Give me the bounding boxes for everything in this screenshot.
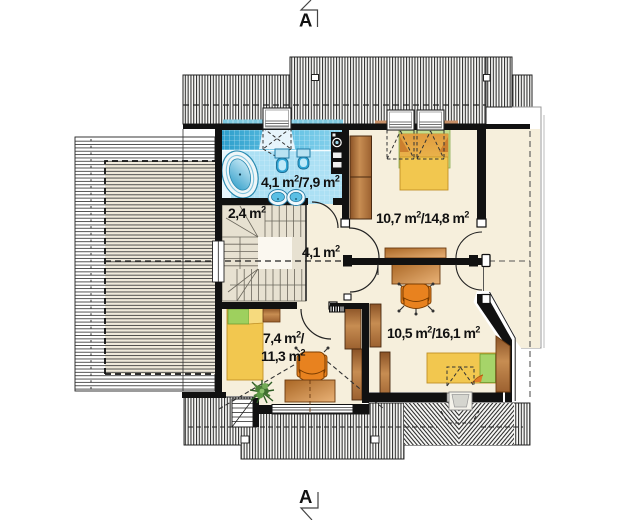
svg-text:4,1 m2/7,9 m2: 4,1 m2/7,9 m2 — [261, 174, 340, 191]
svg-text:11,3 m2: 11,3 m2 — [261, 348, 306, 365]
svg-text:A: A — [299, 10, 312, 31]
svg-text:10,7 m2/14,8 m2: 10,7 m2/14,8 m2 — [376, 210, 469, 227]
svg-text:4,1 m2: 4,1 m2 — [302, 244, 340, 261]
svg-text:A: A — [299, 486, 312, 507]
svg-text:10,5 m2/16,1 m2: 10,5 m2/16,1 m2 — [387, 325, 480, 342]
svg-text:2,4 m2: 2,4 m2 — [228, 205, 266, 222]
